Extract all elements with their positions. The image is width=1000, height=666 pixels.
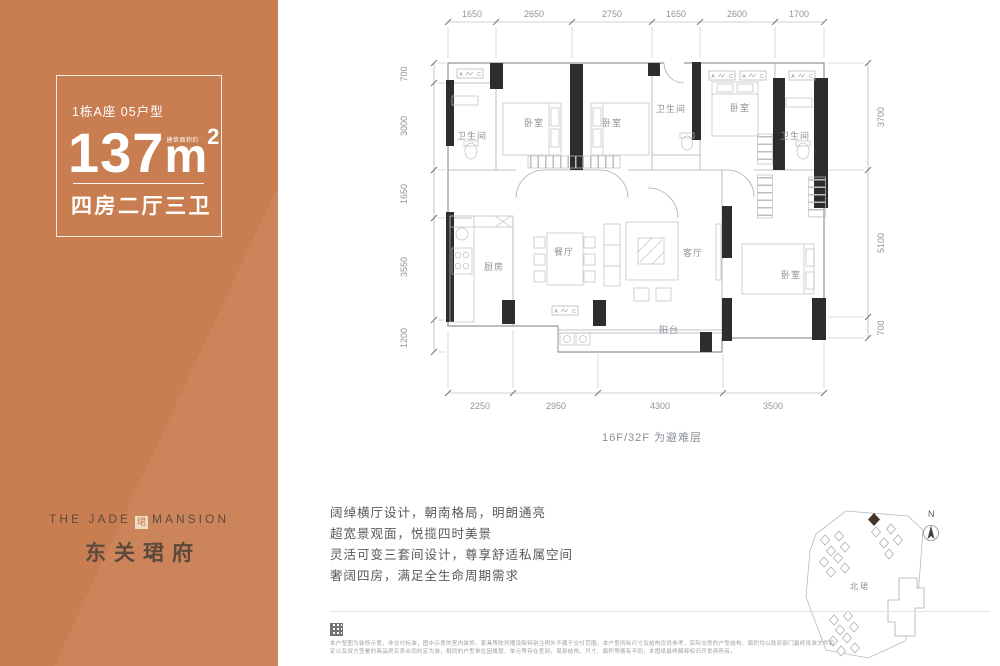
svg-text:阳台: 阳台 [659,324,679,335]
unit-info-box: 1栋A座 05户型 137建筑面积约m2 四房二厅三卫 [56,75,222,237]
svg-text:客厅: 客厅 [683,247,703,258]
brochure-page: 1栋A座 05户型 137建筑面积约m2 四房二厅三卫 THE JADE珺MAN… [0,0,1000,666]
svg-text:700: 700 [876,320,886,335]
feature-line: 超宽景观面，悦揽四时美景 [330,524,573,545]
rooms-summary: 四房二厅三卫 [71,190,212,220]
svg-text:3700: 3700 [876,107,886,127]
svg-text:2750: 2750 [602,9,622,19]
area-note: 建筑面积约 [166,135,199,144]
svg-text:A: A [459,72,463,78]
svg-text:卫生间: 卫生间 [780,130,810,141]
svg-text:C: C [809,74,813,80]
svg-text:C: C [760,74,764,80]
svg-text:3500: 3500 [763,401,783,411]
headline-divider [73,183,204,184]
estate-label: 北珺 [850,582,870,591]
floor-plan: 1650 2650 2750 1650 2600 1700 2250 2950 … [385,0,895,470]
brand-seal-icon: 珺 [135,516,148,529]
svg-text:700: 700 [399,66,409,81]
area-number: 137 [68,121,164,184]
footer-divider [330,611,990,612]
disclaimer-block: 本户型图为装修示意，非交付标准，图中示意的室内装饰、家具等陈列摆设除特别注明外不… [330,623,992,656]
svg-text:卧室: 卧室 [781,269,801,280]
svg-text:卫生间: 卫生间 [656,103,686,114]
svg-text:1650: 1650 [399,184,409,204]
svg-text:卫生间: 卫生间 [457,130,487,141]
svg-text:卧室: 卧室 [524,117,544,128]
svg-text:5100: 5100 [876,233,886,253]
refuge-floor-note: 16F/32F 为避难层 [602,430,702,444]
feature-list: 阔绰横厅设计，朝南格局，明朗通亮 超宽景观面，悦揽四时美景 灵活可变三套间设计，… [330,503,573,587]
svg-text:卧室: 卧室 [602,117,622,128]
svg-text:1200: 1200 [399,328,409,348]
left-brand-panel: 1栋A座 05户型 137建筑面积约m2 四房二厅三卫 THE JADE珺MAN… [0,0,278,666]
svg-text:2250: 2250 [470,401,490,411]
unit-label: 1栋A座 05户型 [72,101,164,120]
svg-text:厨房: 厨房 [484,261,504,272]
svg-text:餐厅: 餐厅 [554,246,574,257]
svg-text:N: N [928,509,935,519]
svg-text:1700: 1700 [789,9,809,19]
brand-english: THE JADE珺MANSION [0,512,278,529]
disclaimer-line-1: 本户型图为装修示意，非交付标准，图中示意的室内装饰、家具等陈列摆设除特别注明外不… [330,640,992,648]
svg-text:A: A [791,74,795,80]
feature-line: 奢阔四房，满足全生命周期需求 [330,566,573,587]
svg-text:C: C [477,72,481,78]
svg-text:4300: 4300 [650,401,670,411]
svg-text:A: A [554,309,558,315]
svg-text:1650: 1650 [666,9,686,19]
svg-text:3000: 3000 [399,116,409,136]
svg-text:卧室: 卧室 [730,102,750,113]
svg-text:A: A [742,74,746,80]
svg-text:2600: 2600 [727,9,747,19]
seal-stamp-icon [330,623,343,636]
svg-text:2650: 2650 [524,9,544,19]
svg-text:1650: 1650 [462,9,482,19]
feature-line: 阔绰横厅设计，朝南格局，明朗通亮 [330,503,573,524]
svg-text:C: C [729,74,733,80]
compass-icon: N [924,509,939,541]
feature-line: 灵活可变三套间设计，尊享舒适私属空间 [330,545,573,566]
area-figure: 137建筑面积约m2 [68,120,219,185]
svg-text:C: C [572,309,576,315]
svg-text:A: A [711,74,715,80]
disclaimer-line-2: 定以及双方签署的商品房买卖合同约定为准，相同的户型单位因楼层、单元等存在差别，局… [330,648,992,656]
brand-english-right: MANSION [152,512,229,526]
svg-text:3550: 3550 [399,257,409,277]
area-exponent: 2 [207,124,219,149]
brand-english-left: THE JADE [49,512,131,526]
svg-text:2950: 2950 [546,401,566,411]
brand-block: THE JADE珺MANSION 东关珺府 [0,512,278,567]
brand-chinese: 东关珺府 [0,537,278,567]
